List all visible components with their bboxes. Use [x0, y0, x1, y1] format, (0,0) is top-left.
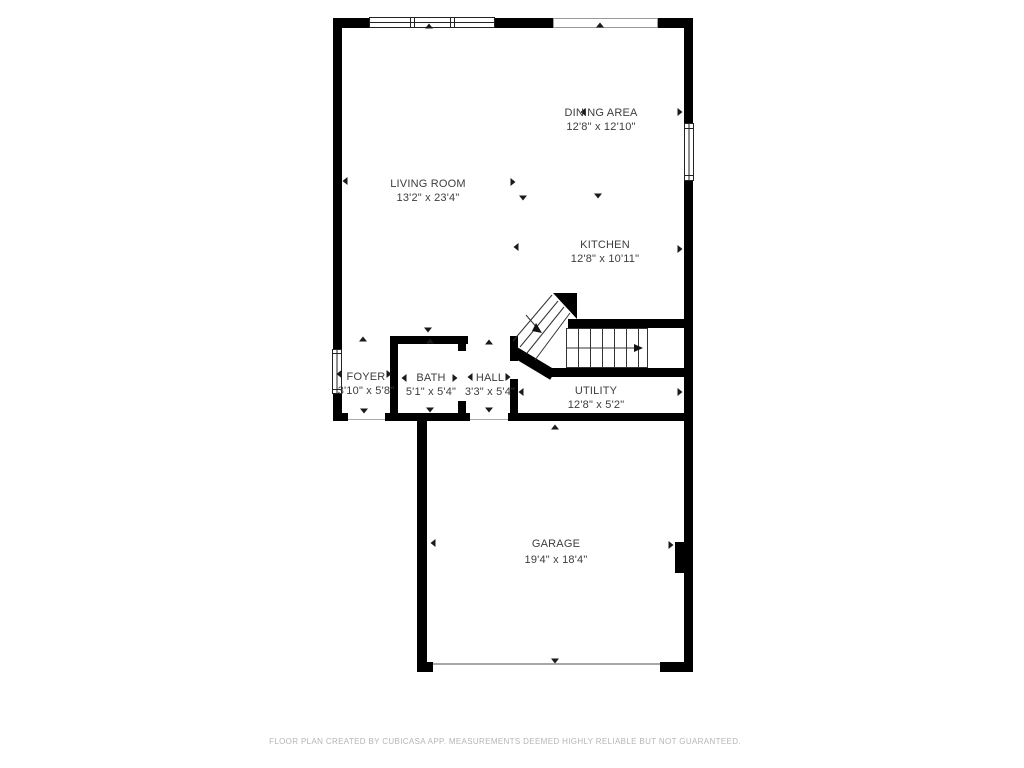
room-name: UTILITY	[568, 384, 625, 398]
footer-disclaimer: FLOOR PLAN CREATED BY CUBICASA APP. MEAS…	[0, 737, 1010, 746]
window-right	[685, 124, 694, 181]
room-label-garage: GARAGE 19'4" x 18'4"	[525, 536, 588, 568]
room-name: GARAGE	[525, 536, 588, 552]
room-name: KITCHEN	[571, 238, 639, 252]
room-name: LIVING ROOM	[390, 177, 466, 191]
room-dimensions: 13'2" x 23'4"	[390, 191, 466, 205]
room-dimensions: 12'8" x 12'10"	[564, 120, 637, 134]
room-label-hall: HALL 3'3" x 5'4"	[465, 371, 515, 399]
room-dimensions: 3'3" x 5'4"	[465, 385, 515, 399]
room-label-foyer: FOYER 3'10" x 5'8"	[338, 370, 395, 398]
room-name: FOYER	[338, 370, 395, 384]
room-label-dining-area: DINING AREA 12'8" x 12'10"	[564, 106, 637, 134]
floor-plan-canvas: LIVING ROOM 13'2" x 23'4" DINING AREA 12…	[0, 0, 1024, 768]
room-name: HALL	[465, 371, 515, 385]
room-dimensions: 19'4" x 18'4"	[525, 552, 588, 568]
window-top	[370, 18, 495, 28]
room-label-living-room: LIVING ROOM 13'2" x 23'4"	[390, 177, 466, 205]
room-dimensions: 12'8" x 10'11"	[571, 252, 639, 266]
room-dimensions: 5'1" x 5'4"	[406, 385, 456, 399]
room-dimensions: 12'8" x 5'2"	[568, 398, 625, 412]
room-name: DINING AREA	[564, 106, 637, 120]
room-name: BATH	[406, 371, 456, 385]
room-label-utility: UTILITY 12'8" x 5'2"	[568, 384, 625, 412]
staircase	[513, 295, 648, 368]
room-label-kitchen: KITCHEN 12'8" x 10'11"	[571, 238, 639, 266]
room-dimensions: 3'10" x 5'8"	[338, 384, 395, 398]
room-label-bath: BATH 5'1" x 5'4"	[406, 371, 456, 399]
